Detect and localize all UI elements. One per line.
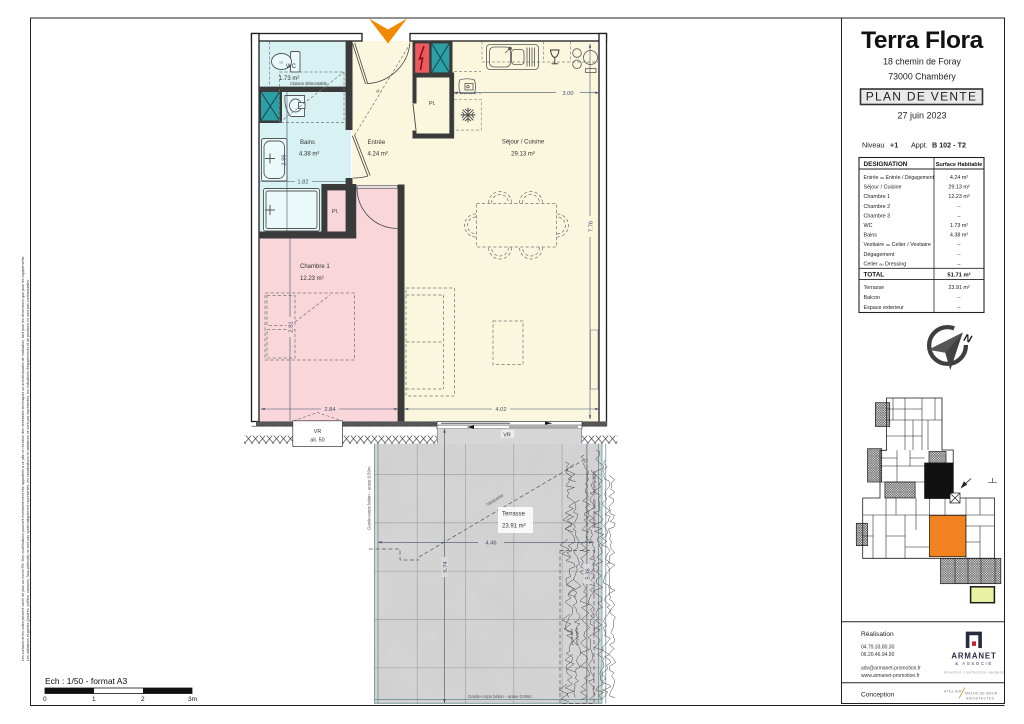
svg-text:23.91 m²: 23.91 m² [948,285,969,291]
svg-text:Chambre 1: Chambre 1 [864,194,891,200]
svg-text:2.86: 2.86 [282,154,288,165]
svg-text:+1: +1 [890,141,898,150]
svg-text:TOTAL: TOTAL [864,272,885,279]
svg-text:06.20.46.94.90: 06.20.46.94.90 [861,652,895,658]
svg-text:Terra Flora: Terra Flora [861,27,984,54]
svg-text:2.81: 2.81 [289,321,295,332]
svg-text:1.82: 1.82 [297,180,308,186]
svg-text:Chambre 3: Chambre 3 [864,213,891,219]
svg-text:Ech : 1/50 - format A3: Ech : 1/50 - format A3 [45,676,127,686]
svg-text:23.91 m²: 23.91 m² [502,524,526,530]
svg-text:0: 0 [43,696,47,703]
svg-text:adv@armanet-promotion.fr: adv@armanet-promotion.fr [861,666,921,672]
svg-text:all. 50: all. 50 [310,438,324,444]
svg-text:04.79.33.80.30: 04.79.33.80.30 [861,645,895,651]
svg-text:1.73 m²: 1.73 m² [950,223,968,229]
svg-text:Conception: Conception [861,692,895,699]
svg-text:Terrasse: Terrasse [864,285,885,291]
svg-text:MATHILDE BRUN: MATHILDE BRUN [965,692,998,696]
svg-text:12.23 m²: 12.23 m² [948,194,969,200]
svg-text:4.46: 4.46 [485,541,496,547]
svg-text:Chambre 1: Chambre 1 [300,264,330,270]
svg-text:Séjour / Cuisine: Séjour / Cuisine [502,140,545,146]
svg-text:5.36: 5.36 [586,568,592,579]
svg-text:Garde-corps béton - arase 0.59: Garde-corps béton - arase 0.59m [367,466,372,530]
svg-text:4.24 m²: 4.24 m² [950,175,968,181]
svg-text:ARCHITECTES: ARCHITECTES [966,697,995,701]
svg-text:73000 Chambéry: 73000 Chambéry [888,72,956,82]
svg-text:& ASSOCIÉ: & ASSOCIÉ [955,661,993,666]
svg-text:Réalisation: Réalisation [861,631,894,638]
svg-text:ARMANET: ARMANET [951,652,996,661]
svg-text:Niveau: Niveau [862,141,884,150]
svg-text:Pl.: Pl. [332,209,339,215]
svg-text:18 chemin de Foray: 18 chemin de Foray [883,57,961,67]
svg-text:4.38 m²: 4.38 m² [299,152,319,158]
svg-text:Bains: Bains [300,140,315,146]
svg-text:1: 1 [92,696,96,703]
svg-text:WC: WC [864,223,873,229]
svg-text:PROMOTEUR - CONSTRUCTEUR - IMM: PROMOTEUR - CONSTRUCTEUR - IMMOBILIER [944,671,1005,675]
svg-text:Appt.: Appt. [911,141,928,150]
svg-text:Pl.: Pl. [429,101,436,107]
svg-text:Chambre 2: Chambre 2 [864,204,891,210]
svg-text:Bains: Bains [864,233,878,239]
svg-text:29.13 m²: 29.13 m² [511,152,535,158]
svg-text:ATELIER: ATELIER [944,690,962,694]
svg-text:Celier ou Dressing: Celier ou Dressing [864,261,907,267]
svg-text:–: – [958,295,961,301]
svg-text:–: – [958,252,961,258]
svg-text:2.84: 2.84 [324,407,336,413]
svg-text:Garde-corps béton - arase 0.59: Garde-corps béton - arase 0.59m [468,694,532,699]
svg-text:PLAN DE VENTE: PLAN DE VENTE [866,90,978,104]
svg-text:5.74: 5.74 [443,561,449,573]
svg-text:WC: WC [286,64,297,70]
svg-text:–: – [958,213,961,219]
svg-text:Surface Habitable: Surface Habitable [936,162,982,168]
svg-text:Vestiaire ou Celier / Vestiair: Vestiaire ou Celier / Vestiaire [864,242,931,248]
svg-text:Espace exterieur: Espace exterieur [864,305,905,311]
svg-text:27 juin 2023: 27 juin 2023 [897,111,946,121]
svg-text:18: 18 [279,61,283,65]
svg-text:7.76: 7.76 [589,221,595,232]
svg-text:Dégagement: Dégagement [864,252,895,258]
svg-text:–: – [958,261,961,267]
svg-text:–: – [958,242,961,248]
svg-text:VR: VR [314,429,322,435]
svg-text:Les surfaces et les cotes peuv: Les surfaces et les cotes peuvent varier… [21,256,25,661]
svg-text:4.38 m²: 4.38 m² [950,233,968,239]
svg-text:–: – [958,204,961,210]
svg-text:2: 2 [141,696,145,703]
svg-text:Balcon: Balcon [864,295,880,301]
svg-text:3.00: 3.00 [562,91,573,97]
svg-text:–: – [958,305,961,311]
svg-text:Entrée: Entrée [368,140,386,146]
svg-text:29.13 m²: 29.13 m² [948,185,969,191]
svg-text:VR: VR [503,433,511,439]
svg-text:www.armanet-promotion.fr: www.armanet-promotion.fr [861,673,920,679]
svg-text:Les radiateurs et gaines (pout: Les radiateurs et gaines (poutres, soffi… [26,279,30,661]
svg-text:3m: 3m [188,696,197,703]
svg-text:Entrée ou Entrée / Dégagement: Entrée ou Entrée / Dégagement [864,175,935,181]
svg-text:B 102 - T2: B 102 - T2 [932,141,966,150]
svg-text:51.71 m²: 51.71 m² [947,272,970,279]
svg-text:12.23 m²: 12.23 m² [300,276,324,282]
svg-text:1.73 m²: 1.73 m² [279,76,299,82]
svg-text:DESIGNATION: DESIGNATION [864,161,908,168]
svg-text:Terrasse: Terrasse [502,512,526,518]
svg-text:4.02: 4.02 [495,407,506,413]
svg-text:Séjour / Cuisine: Séjour / Cuisine [864,185,902,191]
svg-text:4.24 m²: 4.24 m² [368,152,388,158]
